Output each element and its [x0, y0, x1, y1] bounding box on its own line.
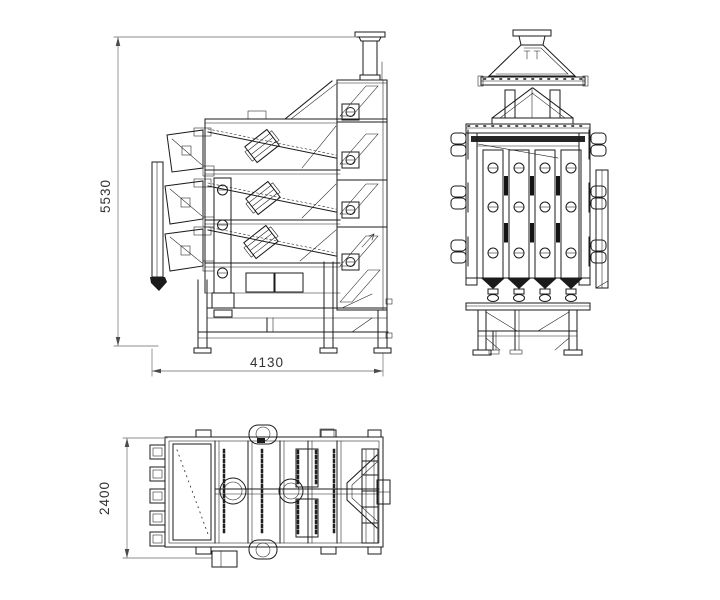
three-view-machine-drawing: 5530 4130 2400 — [0, 0, 720, 600]
length-dimension-label: 4130 — [250, 355, 284, 370]
height-dimension-label: 5530 — [98, 179, 113, 213]
plan-view — [150, 425, 390, 567]
vibration-motor-3 — [241, 224, 280, 261]
vibration-motor-2 — [243, 180, 282, 217]
front-view — [150, 32, 392, 353]
end-view — [451, 30, 608, 355]
length-dimension: 4130 — [152, 349, 383, 376]
technical-drawing-canvas: 5530 4130 2400 — [0, 0, 720, 600]
width-dimension-label: 2400 — [97, 481, 112, 515]
